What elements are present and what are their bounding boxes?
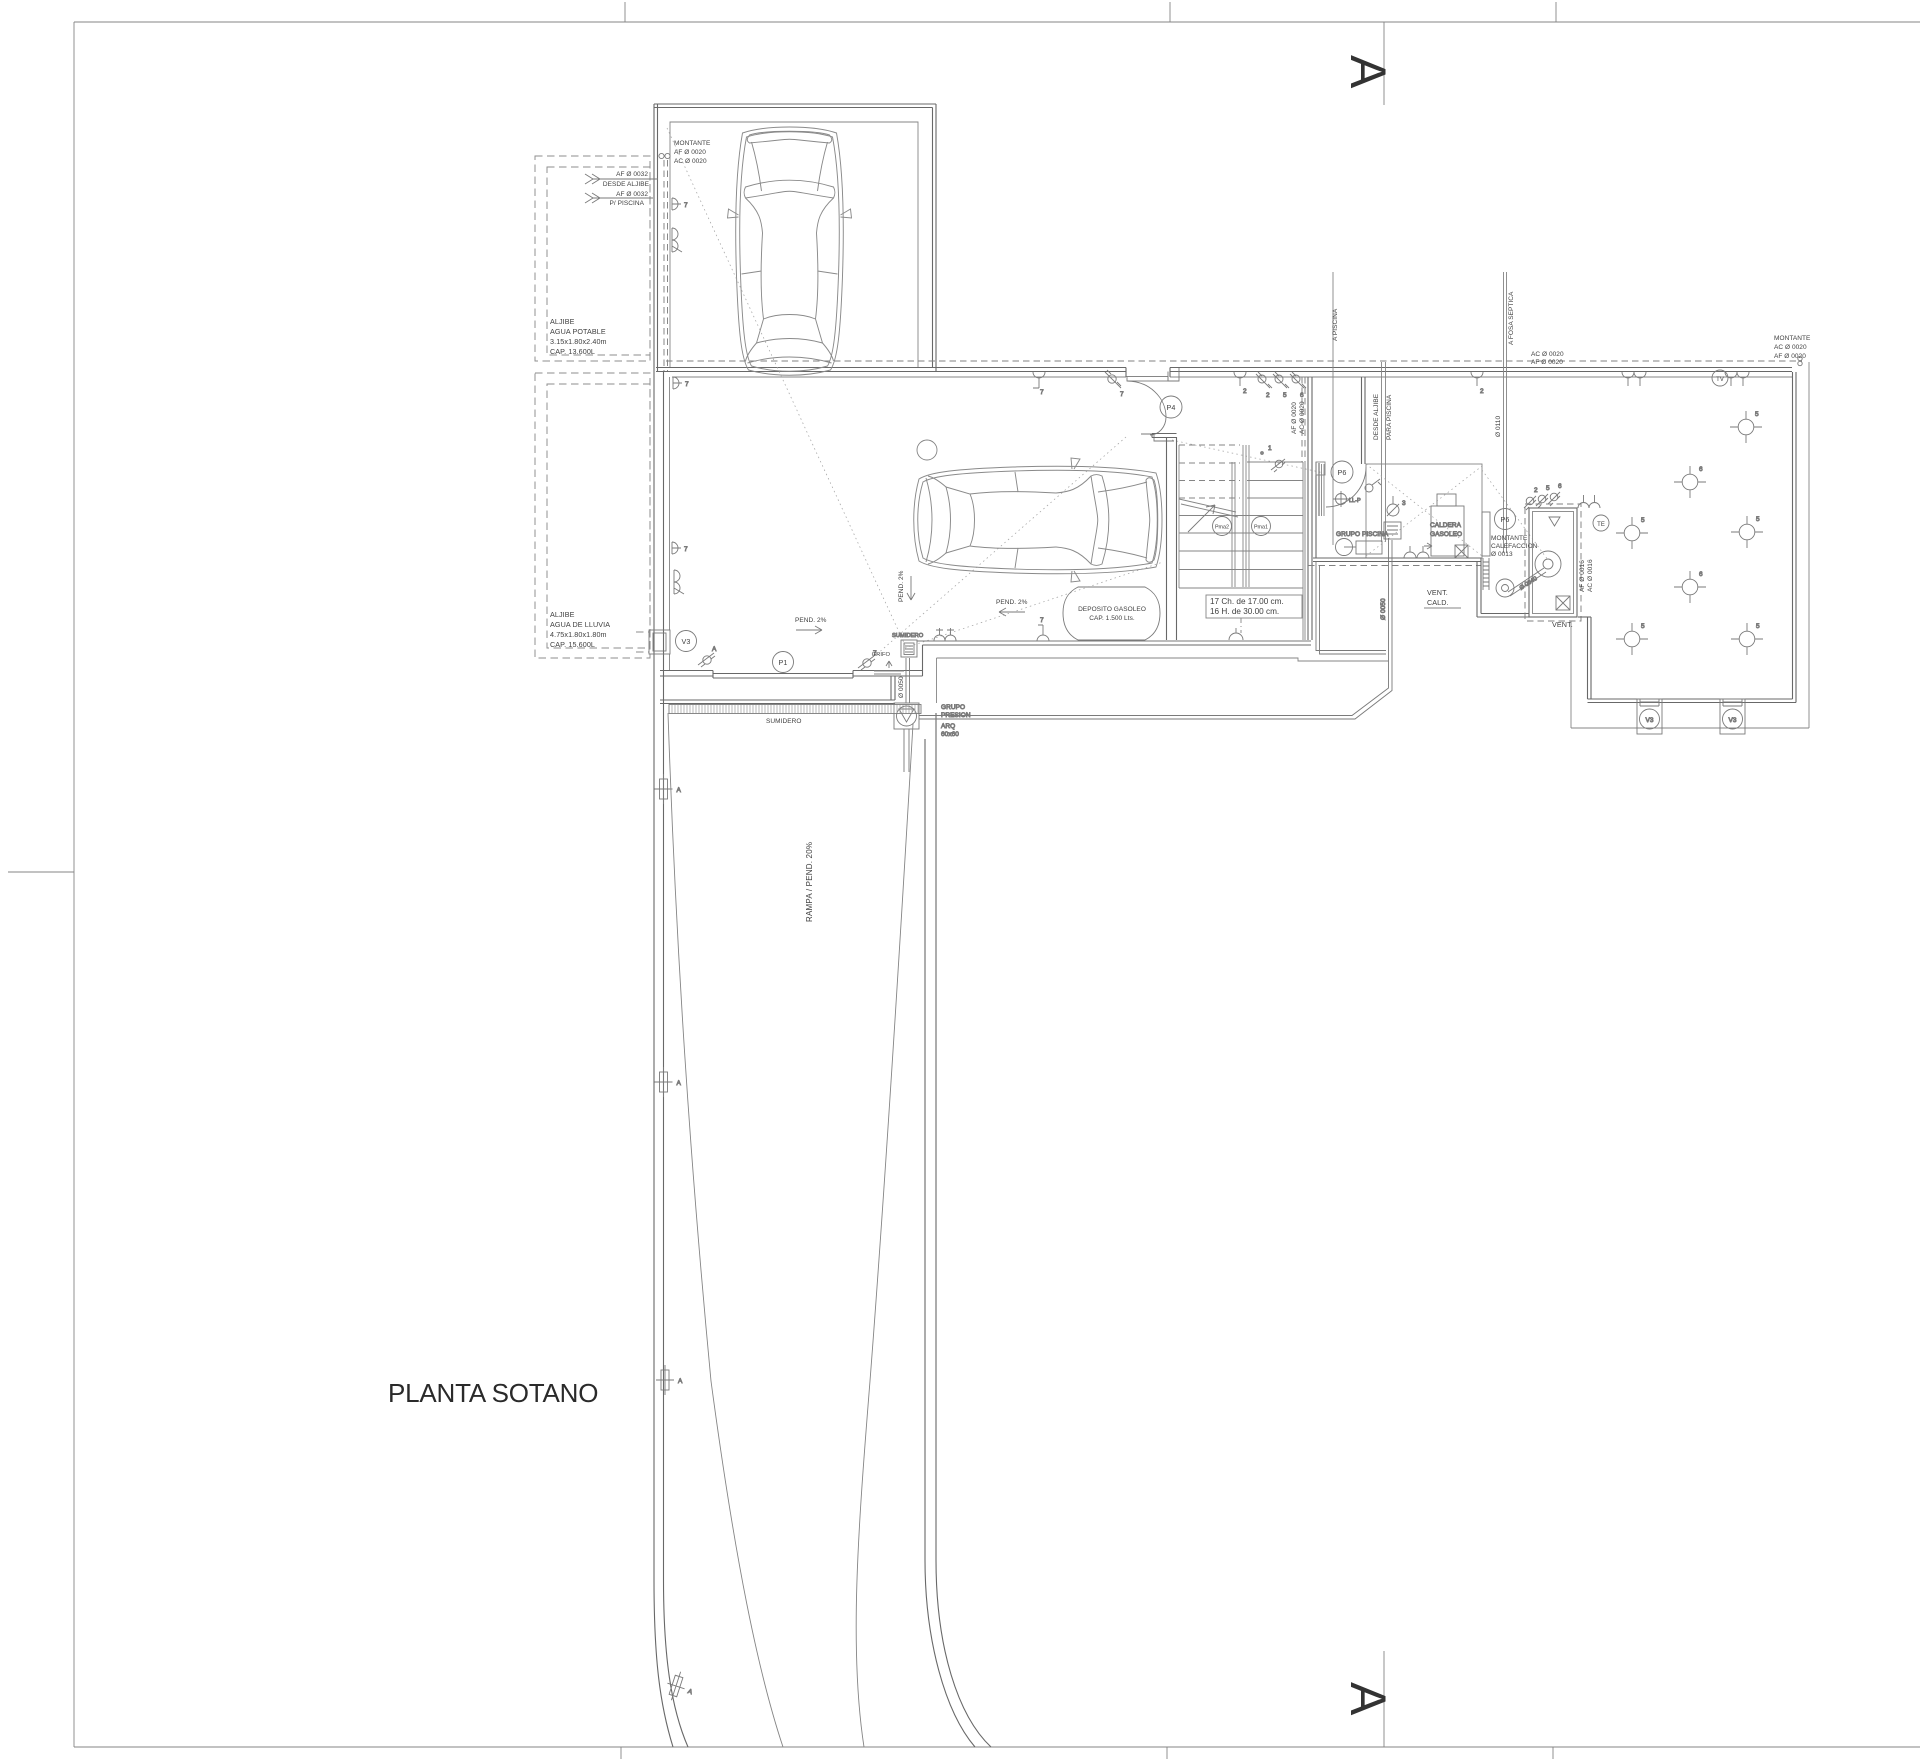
svg-text:A: A [677,787,682,794]
svg-text:A: A [1340,1682,1396,1716]
svg-text:DESDE ALJIBE: DESDE ALJIBE [1373,393,1380,440]
svg-text:2: 2 [1266,392,1270,399]
svg-text:P6: P6 [1501,515,1510,524]
svg-text:AF Ø 0032: AF Ø 0032 [616,171,648,178]
svg-text:V3: V3 [682,637,691,646]
svg-text:ARQ: ARQ [941,723,955,730]
svg-text:5: 5 [1641,517,1645,524]
svg-text:2: 2 [1480,388,1484,395]
svg-text:7: 7 [1040,389,1044,396]
svg-text:7: 7 [1120,391,1124,398]
svg-text:1: 1 [1268,445,1272,452]
svg-text:DESDE ALJIBE: DESDE ALJIBE [603,181,650,188]
svg-text:ALJIBE: ALJIBE [550,610,575,619]
svg-text:GRIFO: GRIFO [872,652,891,658]
svg-text:CALD.: CALD. [1427,598,1449,607]
svg-text:A FOSA SEPTICA: A FOSA SEPTICA [1508,291,1515,345]
svg-text:7: 7 [684,202,688,209]
svg-text:CAP. 13.600L: CAP. 13.600L [550,347,595,356]
svg-text:6: 6 [1699,571,1703,578]
svg-text:7: 7 [1040,617,1044,624]
svg-text:5: 5 [1283,392,1287,399]
svg-text:CALEFACCION: CALEFACCION [1491,543,1538,550]
svg-text:A: A [678,1378,683,1385]
svg-text:CAP. 15.600L: CAP. 15.600L [550,640,595,649]
svg-text:DEPOSITO GASOLEO: DEPOSITO GASOLEO [1078,606,1146,613]
svg-text:MONTANTE: MONTANTE [1774,335,1811,342]
svg-text:16 H. de 30.00 cm.: 16 H. de 30.00 cm. [1210,607,1279,616]
svg-text:PLANTA SOTANO: PLANTA SOTANO [388,1378,598,1408]
svg-text:2: 2 [1534,487,1538,494]
svg-text:AGUA POTABLE: AGUA POTABLE [550,327,606,336]
svg-text:6: 6 [1699,466,1703,473]
svg-text:Ø 0110: Ø 0110 [1495,416,1502,437]
svg-text:P/ PISCINA: P/ PISCINA [610,200,645,207]
svg-text:Pma1: Pma1 [1254,525,1268,531]
svg-text:A PISCINA: A PISCINA [1332,308,1339,341]
svg-text:SUMIDERO: SUMIDERO [892,633,924,639]
svg-text:5: 5 [1641,623,1645,630]
svg-text:17 Ch. de 17.00 cm.: 17 Ch. de 17.00 cm. [1210,597,1284,606]
svg-text:7: 7 [685,381,689,388]
svg-text:A: A [677,1080,682,1087]
svg-text:RAMPA / PEND. 20%: RAMPA / PEND. 20% [805,842,814,922]
svg-text:60x60: 60x60 [941,731,959,738]
svg-text:AC Ø 0020: AC Ø 0020 [1774,344,1807,351]
svg-text:LL-P: LL-P [1349,498,1361,504]
svg-text:AGUA DE LLUVIA: AGUA DE LLUVIA [550,620,610,629]
svg-text:5: 5 [1756,623,1760,630]
svg-text:SUMIDERO: SUMIDERO [766,718,801,725]
svg-text:A: A [712,646,717,653]
svg-text:AF Ø 0020: AF Ø 0020 [1291,402,1298,434]
svg-text:TV: TV [1716,377,1724,383]
svg-text:CAP. 1.500 Lts.: CAP. 1.500 Lts. [1089,615,1135,622]
svg-text:VENT.: VENT. [1552,620,1573,629]
svg-text:AC Ø 0020: AC Ø 0020 [1299,401,1306,434]
svg-text:PEND. 2%: PEND. 2% [795,617,827,624]
svg-text:Ø 0013: Ø 0013 [1491,551,1513,558]
svg-text:GASOLEO: GASOLEO [1430,531,1462,538]
svg-text:5: 5 [1755,411,1759,418]
svg-text:MONTANTE: MONTANTE [1491,535,1528,542]
svg-text:3: 3 [1402,500,1406,507]
svg-text:AC Ø 0016: AC Ø 0016 [1587,559,1594,592]
svg-text:AF Ø 0020: AF Ø 0020 [674,149,706,156]
svg-text:5: 5 [1756,516,1760,523]
svg-text:PEND. 2%: PEND. 2% [898,570,905,602]
svg-text:A: A [1340,55,1396,89]
svg-text:TE: TE [1597,522,1605,528]
svg-text:PEND. 2%: PEND. 2% [996,599,1028,606]
svg-text:P4: P4 [1167,403,1176,412]
svg-text:VENT.: VENT. [1427,588,1448,597]
svg-text:GRUPO PISCINA: GRUPO PISCINA [1336,531,1389,538]
svg-text:3.15x1.80x2.40m: 3.15x1.80x2.40m [550,337,607,346]
svg-text:P1: P1 [779,658,788,667]
svg-text:PARA PISCINA: PARA PISCINA [1386,394,1393,440]
svg-text:6: 6 [1558,483,1562,490]
svg-text:CALDERA: CALDERA [1430,522,1462,529]
svg-text:AF Ø 0032: AF Ø 0032 [616,191,648,198]
svg-text:Ø 0050: Ø 0050 [898,676,905,698]
svg-text:7: 7 [684,546,688,553]
svg-text:AC Ø 0020: AC Ø 0020 [1531,351,1564,358]
svg-text:AF Ø 0016: AF Ø 0016 [1579,560,1586,592]
svg-text:2: 2 [1243,388,1247,395]
svg-text:4.75x1.80x1.80m: 4.75x1.80x1.80m [550,630,607,639]
svg-text:AF Ø 0020: AF Ø 0020 [1531,359,1563,366]
svg-text:ALJIBE: ALJIBE [550,317,575,326]
svg-text:AC Ø 0020: AC Ø 0020 [674,158,707,165]
svg-text:MONTANTE: MONTANTE [674,140,711,147]
svg-text:V3: V3 [1646,717,1654,724]
svg-text:V3: V3 [1729,717,1737,724]
svg-text:6: 6 [1300,392,1304,399]
svg-text:GRUPO: GRUPO [941,704,965,711]
svg-text:Ø 0050: Ø 0050 [1380,598,1387,620]
svg-text:Pma2: Pma2 [1215,525,1229,531]
svg-text:5: 5 [1546,485,1550,492]
svg-text:P6: P6 [1338,468,1347,477]
